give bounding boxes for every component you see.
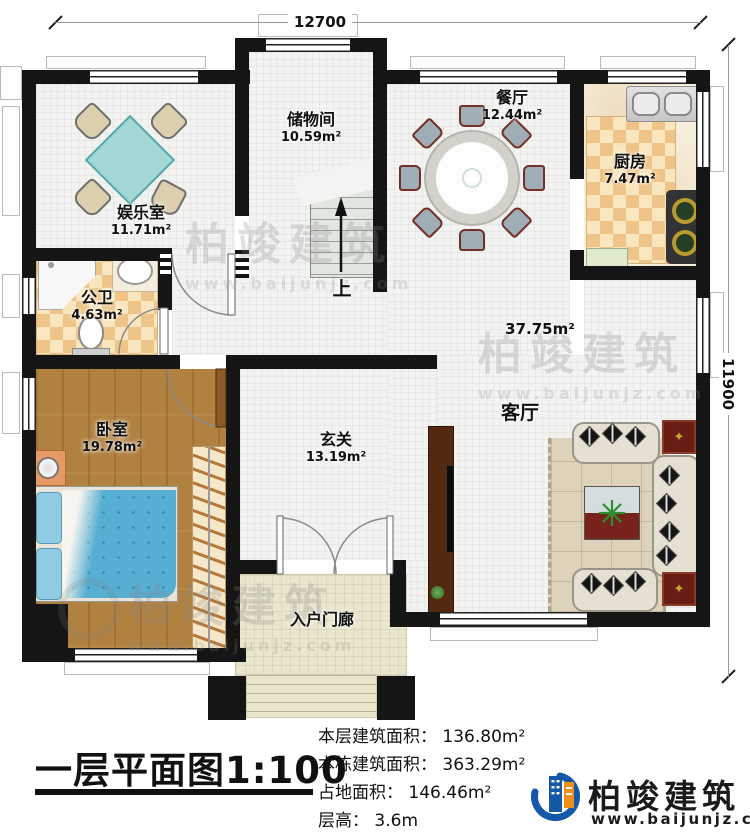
floor-kitchen	[586, 116, 676, 264]
door-jamb	[160, 250, 171, 278]
door-jamb	[235, 248, 249, 278]
window	[266, 38, 350, 52]
room-label-bedroom: 卧室 19.78m²	[52, 420, 172, 456]
burner	[672, 230, 698, 256]
side-table: ✦	[662, 420, 696, 454]
brand-website: www.baijunjz.com	[591, 810, 750, 828]
plan-title: 一层平面图1:100	[35, 740, 348, 794]
porch-pillar	[208, 676, 246, 720]
dimension-top: 12700	[288, 11, 352, 33]
window-sill	[410, 56, 565, 69]
window	[22, 378, 36, 430]
pillow	[36, 548, 62, 600]
watermark-logo-ring	[58, 578, 120, 640]
door-leaf	[160, 308, 168, 354]
chair	[399, 165, 421, 191]
wall	[22, 355, 180, 369]
stat-building-area: 本栋建筑面积： 363.29m²	[318, 750, 525, 775]
window-sill	[2, 274, 20, 318]
wall	[226, 369, 240, 662]
room-label-porch: 入户门廊	[262, 610, 382, 630]
wardrobe-rail	[208, 446, 210, 662]
dining-table-center	[462, 168, 482, 188]
dimension-line-top	[55, 22, 701, 23]
window-sill	[600, 56, 696, 69]
window-sill	[2, 106, 20, 216]
porch-steps	[246, 674, 377, 718]
room-label-storage: 储物间 10.59m²	[251, 110, 371, 146]
room-label-foyer: 玄关 13.19m²	[276, 430, 396, 466]
burner	[672, 198, 698, 224]
title-underline	[35, 789, 313, 795]
tv	[447, 466, 453, 552]
chair	[523, 165, 545, 191]
floor-plan: ✦ ✦	[0, 0, 750, 728]
building-logo-icon	[522, 768, 582, 828]
window	[420, 70, 557, 84]
bathroom-sink	[117, 257, 153, 285]
window	[90, 70, 198, 84]
porch-pillar	[377, 676, 415, 720]
wall	[22, 248, 172, 261]
plant-decor	[431, 586, 444, 599]
room-label-entertainment: 娱乐室 11.71m²	[81, 203, 201, 239]
window	[696, 92, 710, 167]
room-label-bathroom: 公卫 4.63m²	[37, 288, 157, 324]
sink-basin	[632, 92, 660, 116]
window	[696, 298, 710, 373]
wall	[235, 84, 249, 216]
dimension-right: 11900	[719, 353, 739, 415]
wall	[390, 560, 406, 627]
window-sill	[64, 662, 210, 675]
sink-basin	[664, 92, 692, 116]
window	[22, 278, 36, 314]
side-table: ✦	[662, 572, 696, 606]
wall	[226, 355, 437, 369]
room-label-dining: 餐厅 12.44m²	[452, 88, 572, 124]
chair	[459, 229, 485, 251]
window-sill	[430, 627, 598, 641]
lamp	[37, 457, 59, 479]
stat-floor-height: 层高： 3.6m	[318, 806, 418, 831]
window-sill	[46, 56, 206, 69]
window	[608, 70, 686, 84]
brand-logo-icon	[522, 768, 582, 828]
stairs-up-label: 上	[330, 278, 354, 302]
wall	[373, 38, 387, 292]
room-area-living: 37.75m²	[490, 320, 590, 339]
stat-floor-area: 本层建筑面积： 136.80m²	[318, 722, 525, 747]
eave-outline	[0, 66, 22, 100]
room-label-kitchen: 厨房 7.47m²	[570, 152, 690, 188]
window-sill	[710, 86, 724, 172]
shower-drain	[48, 262, 54, 268]
coffee-table	[584, 486, 640, 540]
wall	[570, 266, 710, 280]
window	[75, 648, 197, 662]
pillow	[36, 492, 62, 544]
window	[440, 612, 587, 627]
stat-footprint-area: 占地面积： 146.46m²	[318, 778, 491, 803]
floor-plan-page: ✦ ✦	[0, 0, 750, 837]
room-label-living: 客厅	[470, 402, 570, 426]
window-sill	[2, 372, 20, 434]
